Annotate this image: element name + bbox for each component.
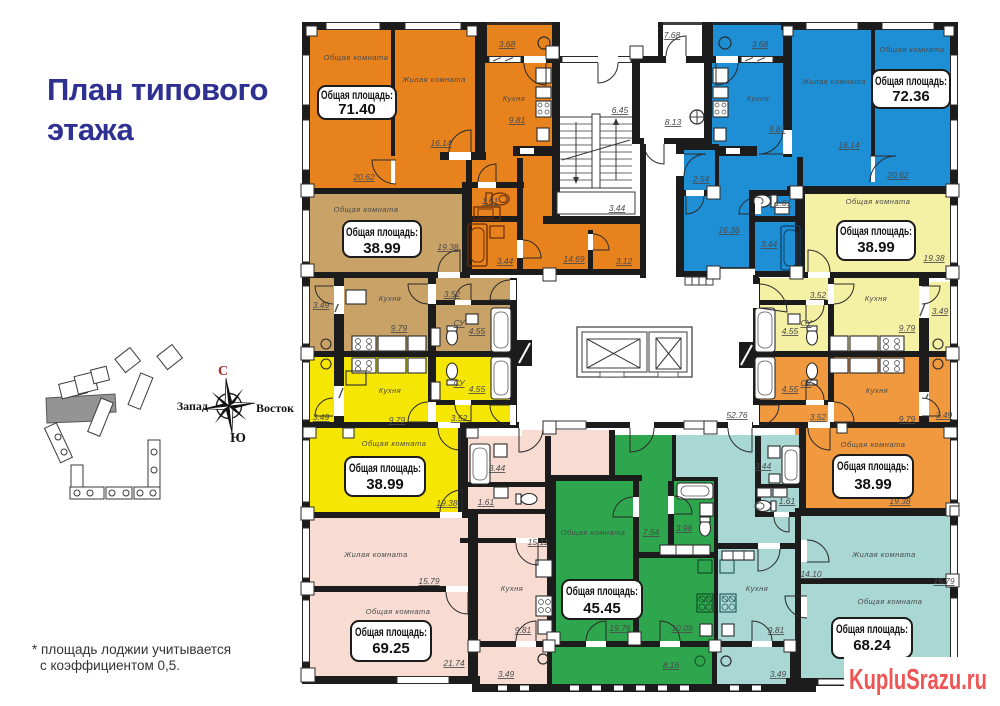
svg-text:15.11: 15.11 <box>528 537 549 547</box>
svg-text:3.52: 3.52 <box>810 412 827 422</box>
svg-text:9.79: 9.79 <box>391 323 408 333</box>
svg-text:3.49: 3.49 <box>498 669 515 679</box>
svg-text:Общая комната: Общая комната <box>334 205 399 214</box>
svg-text:38.99: 38.99 <box>857 239 895 256</box>
svg-text:3.52: 3.52 <box>444 289 461 299</box>
svg-text:3.49: 3.49 <box>936 410 953 420</box>
svg-text:4.55: 4.55 <box>782 326 799 336</box>
svg-text:Общая комната: Общая комната <box>366 607 431 616</box>
svg-text:68.24: 68.24 <box>853 637 891 654</box>
svg-text:Кухня: Кухня <box>866 386 888 395</box>
svg-text:9.79: 9.79 <box>389 415 406 425</box>
svg-text:6.45: 6.45 <box>612 105 629 115</box>
svg-text:Кухня: Кухня <box>501 584 523 593</box>
svg-text:Кухня: Кухня <box>746 584 768 593</box>
svg-text:Общая комната: Общая комната <box>841 440 906 449</box>
svg-text:15.79: 15.79 <box>933 576 955 586</box>
svg-text:16.14: 16.14 <box>838 140 860 150</box>
svg-text:Общая площадь:: Общая площадь: <box>566 584 638 598</box>
svg-text:4.55: 4.55 <box>469 384 486 394</box>
svg-text:8.13: 8.13 <box>665 117 682 127</box>
svg-text:14.10: 14.10 <box>800 569 822 579</box>
svg-text:этажа: этажа <box>47 112 134 147</box>
svg-text:Кухня: Кухня <box>503 94 525 103</box>
svg-text:38.99: 38.99 <box>363 240 401 257</box>
svg-text:1.61: 1.61 <box>775 198 792 208</box>
svg-text:3.44: 3.44 <box>497 256 514 266</box>
svg-text:3.44: 3.44 <box>489 463 506 473</box>
svg-text:Общая площадь:: Общая площадь: <box>875 74 947 88</box>
svg-text:3.44: 3.44 <box>761 239 778 249</box>
svg-text:7.54: 7.54 <box>643 527 660 537</box>
svg-text:СУ: СУ <box>453 378 466 388</box>
svg-text:4.55: 4.55 <box>469 326 486 336</box>
svg-text:Жилая комната: Жилая комната <box>801 77 866 86</box>
svg-text:3.98: 3.98 <box>676 523 693 533</box>
svg-text:72.36: 72.36 <box>892 88 930 105</box>
svg-text:Запад: Запад <box>177 399 208 413</box>
svg-text:Кухня: Кухня <box>747 94 769 103</box>
svg-text:Общая площадь:: Общая площадь: <box>349 461 421 475</box>
svg-text:3.12: 3.12 <box>616 256 633 266</box>
svg-text:Ю: Ю <box>230 431 246 446</box>
svg-text:71.40: 71.40 <box>338 101 376 118</box>
svg-text:3.49: 3.49 <box>313 300 330 310</box>
svg-text:Общая комната: Общая комната <box>846 197 911 206</box>
svg-text:Общая комната: Общая комната <box>324 53 389 62</box>
svg-text:Общая площадь:: Общая площадь: <box>836 622 908 636</box>
svg-text:15.79: 15.79 <box>418 576 440 586</box>
svg-text:9.81: 9.81 <box>769 124 786 134</box>
svg-text:Кухня: Кухня <box>865 294 887 303</box>
svg-text:СУ: СУ <box>453 318 466 328</box>
svg-text:Общая площадь:: Общая площадь: <box>837 459 909 473</box>
svg-text:45.45: 45.45 <box>583 600 621 617</box>
svg-text:16.36: 16.36 <box>718 225 740 235</box>
svg-text:4.55: 4.55 <box>782 384 799 394</box>
svg-text:Кухня: Кухня <box>379 386 401 395</box>
svg-text:9.81: 9.81 <box>515 625 532 635</box>
svg-text:38.99: 38.99 <box>366 476 404 493</box>
svg-text:1.61: 1.61 <box>482 196 499 206</box>
svg-text:* площадь лоджии учитывается: * площадь лоджии учитывается <box>32 642 231 657</box>
svg-text:16.14: 16.14 <box>430 138 452 148</box>
svg-text:14.69: 14.69 <box>563 254 585 264</box>
svg-text:Общая комната: Общая комната <box>880 45 945 54</box>
svg-text:8.16: 8.16 <box>663 660 680 670</box>
svg-text:KupluSrazu.ru: KupluSrazu.ru <box>849 664 987 696</box>
svg-text:С: С <box>218 364 228 379</box>
svg-text:Общая комната: Общая комната <box>561 528 626 537</box>
svg-text:3.52: 3.52 <box>451 413 468 423</box>
svg-text:Общая комната: Общая комната <box>858 597 923 606</box>
svg-text:19.38: 19.38 <box>436 498 458 508</box>
svg-text:7.68: 7.68 <box>664 30 681 40</box>
svg-text:1.61: 1.61 <box>779 496 796 506</box>
svg-text:Общая площадь:: Общая площадь: <box>321 88 393 102</box>
svg-text:Общая площадь:: Общая площадь: <box>355 625 427 639</box>
svg-text:20.62: 20.62 <box>352 172 375 182</box>
svg-text:9.81: 9.81 <box>509 115 526 125</box>
svg-text:69.25: 69.25 <box>372 640 410 657</box>
svg-text:Общая площадь:: Общая площадь: <box>840 224 912 238</box>
svg-text:Жилая комната: Жилая комната <box>851 550 916 559</box>
svg-text:3.44: 3.44 <box>755 461 772 471</box>
svg-text:Жилая комната: Жилая комната <box>343 550 408 559</box>
svg-text:3.68: 3.68 <box>752 39 769 49</box>
svg-text:СУ: СУ <box>800 318 813 328</box>
svg-text:3.52: 3.52 <box>810 290 827 300</box>
svg-text:1.61: 1.61 <box>478 497 495 507</box>
svg-text:СУ: СУ <box>800 378 813 388</box>
svg-text:3.49: 3.49 <box>932 306 949 316</box>
svg-text:с коэффициентом 0,5.: с коэффициентом 0,5. <box>40 658 180 673</box>
svg-text:19.76: 19.76 <box>609 623 631 633</box>
svg-text:Жилая комната: Жилая комната <box>401 75 466 84</box>
svg-text:38.99: 38.99 <box>854 476 892 493</box>
svg-text:10.09: 10.09 <box>671 623 693 633</box>
svg-text:Восток: Восток <box>256 401 294 415</box>
svg-text:21.74: 21.74 <box>442 658 465 668</box>
svg-text:20.62: 20.62 <box>886 170 909 180</box>
svg-text:План типового: План типового <box>47 72 268 107</box>
svg-text:52.76: 52.76 <box>726 410 748 420</box>
svg-text:3.49: 3.49 <box>770 669 787 679</box>
svg-text:3.49: 3.49 <box>313 412 330 422</box>
svg-text:2.54: 2.54 <box>692 174 710 184</box>
svg-text:19.38: 19.38 <box>437 242 459 252</box>
svg-text:9.79: 9.79 <box>899 414 916 424</box>
svg-text:Общая площадь:: Общая площадь: <box>346 225 418 239</box>
svg-text:3.68: 3.68 <box>499 39 516 49</box>
svg-text:9.79: 9.79 <box>899 323 916 333</box>
svg-text:Кухня: Кухня <box>379 294 401 303</box>
svg-text:19.38: 19.38 <box>923 253 945 263</box>
svg-text:Общая комната: Общая комната <box>362 439 427 448</box>
svg-text:9.81: 9.81 <box>768 625 785 635</box>
svg-text:3.44: 3.44 <box>609 203 626 213</box>
